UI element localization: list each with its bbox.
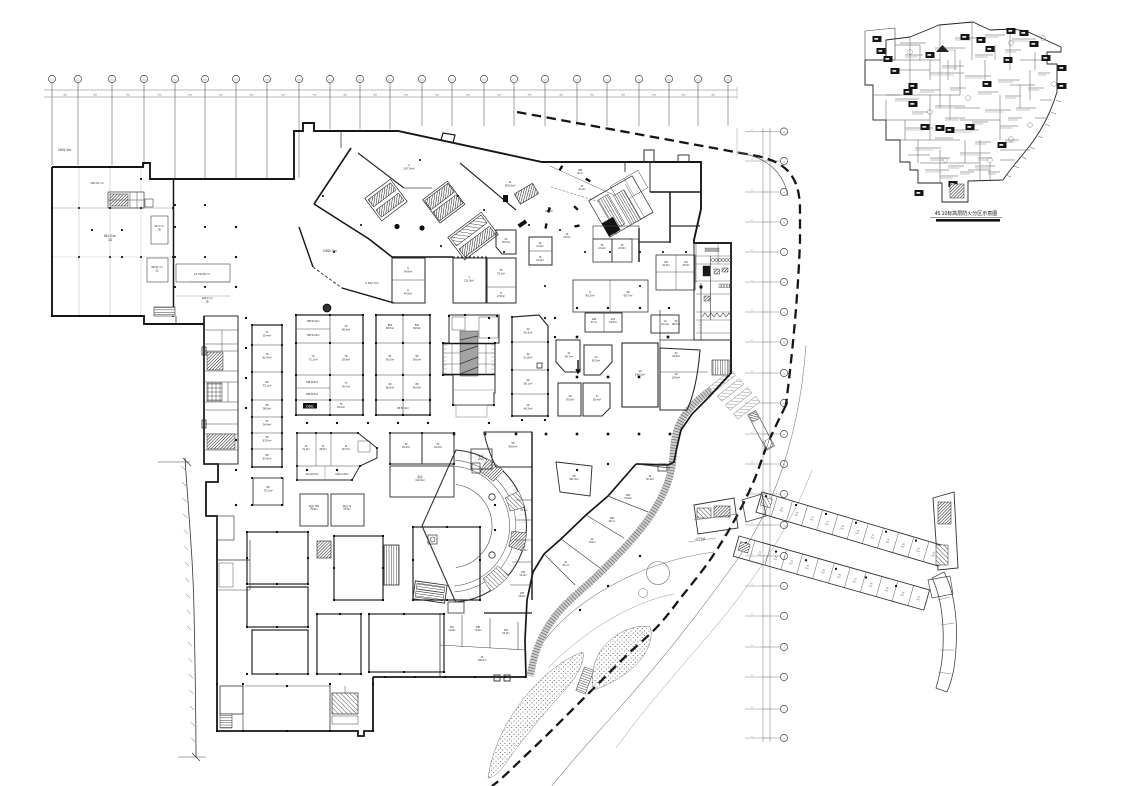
svg-text:41.2m²: 41.2m²: [661, 322, 669, 326]
svg-text:8: 8: [752, 340, 753, 342]
svg-text:66 m²: 66 m²: [609, 520, 616, 523]
svg-text:7800: 7800: [343, 94, 347, 96]
svg-text:44.5m²: 44.5m²: [404, 291, 412, 295]
svg-text:D-2: D-2: [358, 79, 361, 81]
svg-text:7800: 7800: [126, 94, 130, 96]
svg-text:D-8: D-8: [265, 79, 268, 81]
svg-text:73.5m²: 73.5m²: [343, 508, 351, 511]
svg-text:7800: 7800: [188, 94, 192, 96]
svg-text:65.4m²: 65.4m²: [342, 327, 350, 331]
svg-text:8: 8: [752, 220, 753, 222]
svg-text:72.1m²: 72.1m²: [309, 358, 318, 362]
svg-text:48.3m²: 48.3m²: [524, 406, 533, 410]
svg-text:22.4m²: 22.4m²: [536, 259, 544, 262]
svg-text:46B: 46B: [476, 627, 481, 629]
svg-text:D-6: D-6: [482, 79, 485, 81]
svg-text:D-9: D-9: [297, 79, 300, 81]
svg-text:3 850.7m²: 3 850.7m²: [323, 249, 337, 253]
svg-text:75.1m²: 75.1m²: [264, 489, 273, 493]
svg-text:34.8m²: 34.8m²: [404, 269, 412, 273]
svg-text:7800: 7800: [682, 94, 686, 96]
svg-text:7800: 7800: [497, 94, 501, 96]
svg-text:19.6m²: 19.6m²: [337, 405, 345, 409]
svg-text:68.7m²: 68.7m²: [624, 293, 633, 297]
svg-text:63.2m²: 63.2m²: [592, 358, 600, 362]
svg-text:40 m²: 40 m²: [577, 172, 583, 175]
svg-text:21: 21: [783, 132, 785, 134]
svg-text:7800: 7800: [435, 94, 439, 96]
svg-text:46A: 46A: [504, 629, 509, 632]
svg-text:8: 8: [752, 190, 753, 192]
svg-text:19: 19: [783, 192, 785, 194]
svg-text:7800: 7800: [158, 94, 162, 96]
svg-text:D60s: D60s: [306, 405, 314, 409]
svg-text:7800: 7800: [63, 94, 67, 96]
svg-text:D-6: D-6: [203, 79, 206, 81]
svg-text:25.3m²: 25.3m²: [402, 446, 410, 449]
svg-text:8: 8: [752, 432, 753, 434]
svg-text:8: 8: [752, 130, 753, 132]
svg-text:61B 15.25m²: 61B 15.25m²: [335, 473, 348, 476]
svg-text:74B 46.5m²: 74B 46.5m²: [306, 393, 319, 396]
svg-text:98.6m²: 98.6m²: [672, 322, 680, 326]
svg-text:50.4m²: 50.4m²: [646, 478, 654, 481]
svg-text:45.10标高层防火分区示意图: 45.10标高层防火分区示意图: [935, 210, 998, 217]
svg-text:27.8m²: 27.8m²: [497, 294, 505, 298]
svg-text:7800: 7800: [219, 94, 223, 96]
svg-text:23.5m²: 23.5m²: [618, 247, 626, 250]
svg-text:15: 15: [783, 312, 785, 314]
svg-text:61A 29.75m²: 61A 29.75m²: [305, 473, 318, 476]
svg-text:62.4m²: 62.4m²: [263, 356, 272, 360]
svg-text:8: 8: [752, 736, 753, 738]
svg-text:1E: 1E: [205, 299, 209, 303]
svg-text:D-7: D-7: [512, 79, 515, 81]
svg-text:44.3m²: 44.3m²: [519, 574, 526, 577]
svg-text:D-2: D-2: [76, 79, 79, 81]
svg-text:D-5: D-5: [450, 79, 453, 81]
svg-text:8: 8: [752, 250, 753, 252]
svg-text:8: 8: [752, 614, 753, 616]
svg-text:91.5m²: 91.5m²: [434, 446, 442, 449]
svg-text:40.3m²: 40.3m²: [662, 264, 669, 267]
svg-text:18.2m²: 18.2m²: [518, 595, 525, 598]
svg-text:47E: 47E: [521, 572, 526, 574]
svg-text:8: 8: [752, 310, 753, 312]
svg-text:73.3m²: 73.3m²: [474, 629, 481, 632]
svg-text:111.5m²: 111.5m²: [464, 278, 474, 282]
svg-text:41.9m²: 41.9m²: [610, 232, 617, 235]
svg-text:73.1m²: 73.1m²: [263, 384, 272, 388]
svg-text:108.3m²: 108.3m²: [478, 659, 487, 662]
svg-text:18B: 18B: [578, 170, 583, 172]
svg-text:D-7: D-7: [234, 79, 237, 81]
svg-text:8: 8: [752, 707, 753, 709]
svg-text:8: 8: [752, 554, 753, 556]
svg-text:75.6m²: 75.6m²: [310, 508, 318, 511]
svg-text:100.01 m²: 100.01 m²: [90, 181, 104, 185]
svg-text:7800: 7800: [590, 94, 594, 96]
svg-text:15.8m²: 15.8m²: [609, 321, 617, 324]
svg-text:7800: 7800: [373, 94, 377, 96]
svg-text:D-1: D-1: [605, 79, 608, 81]
svg-text:4: 4: [783, 647, 784, 649]
svg-text:83.5m²: 83.5m²: [386, 326, 394, 330]
svg-text:65.3m²: 65.3m²: [502, 632, 509, 635]
svg-text:5: 5: [783, 616, 784, 618]
svg-text:181.5m²: 181.5m²: [569, 477, 579, 481]
svg-text:170m²: 170m²: [588, 541, 595, 544]
svg-text:46C: 46C: [450, 627, 455, 629]
svg-text:7800: 7800: [711, 94, 715, 96]
svg-text:14: 14: [783, 342, 785, 344]
svg-text:80.2m²: 80.2m²: [586, 293, 595, 297]
svg-text:99.6m²: 99.6m²: [509, 444, 518, 448]
svg-text:7800: 7800: [313, 94, 317, 96]
svg-text:78.5m²: 78.5m²: [566, 397, 574, 401]
svg-text:8: 8: [783, 525, 784, 527]
svg-text:11: 11: [783, 434, 785, 436]
svg-text:D-4: D-4: [696, 79, 699, 81]
svg-text:D-4: D-4: [142, 79, 145, 81]
svg-text:34.4m²: 34.4m²: [263, 422, 271, 426]
svg-text:7800: 7800: [404, 94, 408, 96]
svg-text:56.3m²: 56.3m²: [524, 330, 533, 334]
svg-text:32 m²: 32 m²: [591, 321, 598, 324]
svg-text:D-8: D-8: [543, 79, 546, 81]
svg-text:53.5m²: 53.5m²: [263, 438, 272, 442]
svg-text:38.9m²: 38.9m²: [263, 406, 271, 410]
svg-text:8: 8: [752, 645, 753, 647]
svg-text:74B 48.5m²: 74B 48.5m²: [306, 381, 319, 384]
svg-text:4 162.7m²: 4 162.7m²: [365, 281, 379, 285]
svg-text:69.5m²: 69.5m²: [413, 326, 421, 330]
svg-text:7800: 7800: [621, 94, 625, 96]
svg-text:3: 3: [783, 677, 784, 679]
svg-text:160m²: 160m²: [672, 376, 680, 380]
svg-text:29.9m²: 29.9m²: [342, 357, 350, 361]
svg-text:47B: 47B: [520, 593, 525, 595]
svg-text:25.3m²: 25.3m²: [563, 236, 570, 239]
svg-text:8: 8: [752, 280, 753, 282]
svg-text:17: 17: [783, 252, 785, 254]
svg-text:8: 8: [752, 675, 753, 677]
svg-text:D-4: D-4: [420, 79, 423, 81]
svg-text:1C: 1C: [155, 268, 159, 272]
svg-text:41.5m²: 41.5m²: [448, 629, 455, 632]
svg-text:D-5: D-5: [173, 79, 176, 81]
svg-text:8: 8: [752, 462, 753, 464]
svg-text:7800: 7800: [250, 94, 254, 96]
svg-text:D-3: D-3: [110, 79, 113, 81]
svg-text:55 m²: 55 m²: [563, 564, 570, 567]
svg-text:D-1: D-1: [328, 79, 331, 81]
svg-text:61.8m²: 61.8m²: [524, 355, 533, 359]
svg-text:197.2m²: 197.2m²: [342, 448, 351, 451]
svg-text:48.7m²: 48.7m²: [565, 354, 573, 358]
svg-text:21.3m²: 21.3m²: [520, 549, 527, 552]
svg-text:7800: 7800: [652, 94, 656, 96]
svg-text:7800: 7800: [281, 94, 285, 96]
svg-text:20: 20: [783, 161, 785, 163]
svg-text:39.7m²: 39.7m²: [342, 384, 350, 388]
svg-text:60.5m²: 60.5m²: [386, 357, 394, 361]
svg-text:53.9m²: 53.9m²: [263, 456, 272, 460]
svg-text:73.1m²: 73.1m²: [497, 271, 505, 275]
svg-text:7800: 7800: [559, 94, 563, 96]
svg-text:65.5m²: 65.5m²: [413, 385, 421, 389]
svg-text:D-3: D-3: [388, 79, 391, 81]
svg-text:203.6m²: 203.6m²: [505, 184, 516, 188]
svg-text:68 59.3m²: 68 59.3m²: [397, 406, 409, 410]
svg-text:55.4m²: 55.4m²: [593, 397, 601, 401]
svg-text:21.9m²: 21.9m²: [536, 245, 544, 248]
svg-text:16: 16: [783, 282, 785, 284]
svg-text:76.9m²: 76.9m²: [624, 497, 632, 500]
svg-text:66.5m²: 66.5m²: [386, 385, 394, 389]
svg-text:19.4m²: 19.4m²: [520, 509, 527, 512]
svg-text:8: 8: [752, 371, 753, 373]
svg-text:1508.4m²: 1508.4m²: [58, 148, 71, 152]
svg-text:1: 1: [783, 738, 784, 740]
svg-text:13: 13: [783, 373, 785, 375]
svg-text:13: 13: [108, 238, 112, 242]
svg-text:9: 9: [783, 494, 784, 496]
svg-text:D-3: D-3: [667, 79, 670, 81]
svg-text:23.4m²: 23.4m²: [598, 247, 606, 250]
svg-text:72B 53.3m²: 72B 53.3m²: [307, 334, 320, 337]
svg-text:20m²: 20m²: [478, 457, 484, 461]
svg-text:2: 2: [783, 709, 784, 711]
svg-text:8: 8: [752, 523, 753, 525]
svg-text:72B 52.3m²: 72B 52.3m²: [307, 320, 320, 323]
svg-text:6: 6: [783, 586, 784, 588]
svg-text:7800: 7800: [93, 94, 97, 96]
svg-text:8: 8: [752, 159, 753, 161]
svg-text:40.1m²: 40.1m²: [578, 188, 585, 191]
svg-text:41.1m²: 41.1m²: [302, 448, 310, 451]
svg-text:53.2m²: 53.2m²: [502, 240, 510, 244]
svg-text:8: 8: [752, 492, 753, 494]
svg-text:8: 8: [752, 584, 753, 586]
svg-text:207.9m²: 207.9m²: [403, 167, 414, 171]
svg-text:7800: 7800: [528, 94, 532, 96]
svg-text:D-9: D-9: [575, 79, 578, 81]
svg-text:D-1: D-1: [50, 79, 53, 81]
svg-text:18: 18: [783, 222, 785, 224]
svg-text:7800: 7800: [466, 94, 470, 96]
svg-text:D-2: D-2: [637, 79, 640, 81]
svg-text:10 59.58 m²: 10 59.58 m²: [194, 272, 210, 276]
svg-text:40.5m²: 40.5m²: [682, 264, 689, 267]
svg-text:121.9m²: 121.9m²: [415, 478, 425, 482]
svg-text:58.1m²: 58.1m²: [524, 381, 533, 385]
svg-text:43.9m²: 43.9m²: [672, 355, 680, 358]
svg-text:39.6m²: 39.6m²: [413, 357, 421, 361]
svg-text:D-5: D-5: [726, 79, 729, 81]
svg-text:38.8m²: 38.8m²: [319, 448, 326, 451]
svg-text:53.4m²: 53.4m²: [263, 333, 271, 337]
svg-text:1B: 1B: [157, 227, 161, 231]
